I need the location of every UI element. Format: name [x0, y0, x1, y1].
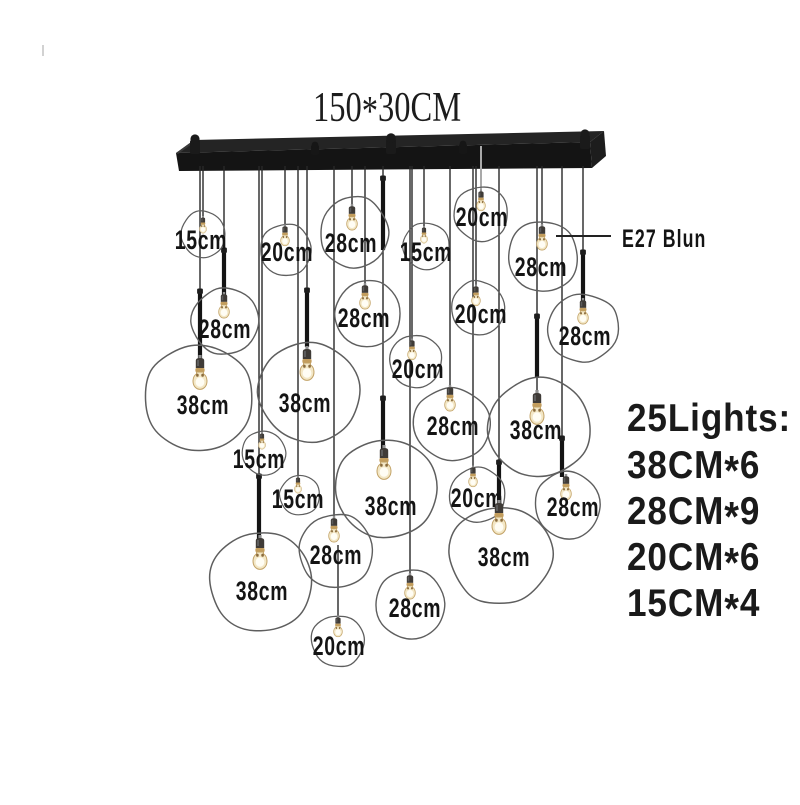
svg-text:28cm: 28cm [199, 314, 252, 344]
svg-text:15cm: 15cm [175, 225, 228, 255]
svg-text:38cm: 38cm [478, 542, 531, 572]
svg-text:28cm: 28cm [310, 540, 363, 570]
svg-text:28cm: 28cm [427, 411, 480, 441]
svg-text:28cm: 28cm [389, 593, 442, 623]
svg-text:20cm: 20cm [392, 354, 445, 384]
svg-text:38cm: 38cm [177, 390, 230, 420]
svg-text:38cm: 38cm [279, 388, 332, 418]
svg-text:25Lights:: 25Lights: [627, 395, 791, 439]
svg-text:15cm: 15cm [272, 484, 325, 514]
svg-text:E27 Blun: E27 Blun [622, 224, 706, 253]
svg-text:20cm: 20cm [456, 202, 509, 232]
svg-text:28cm: 28cm [547, 492, 600, 522]
svg-text:28cm: 28cm [325, 228, 378, 258]
svg-text:38cm: 38cm [236, 576, 289, 606]
svg-text:15cm: 15cm [233, 444, 286, 474]
svg-text:15cm: 15cm [400, 237, 453, 267]
svg-text:28cm: 28cm [559, 321, 612, 351]
svg-text:20cm: 20cm [455, 299, 508, 329]
svg-text:20cm: 20cm [313, 631, 366, 661]
svg-text:20cm: 20cm [261, 237, 314, 267]
svg-text:38cm: 38cm [365, 491, 418, 521]
svg-text:38cm: 38cm [510, 415, 563, 445]
svg-text:28cm: 28cm [338, 303, 391, 333]
svg-text:150*30CM: 150*30CM [313, 84, 461, 135]
svg-text:28cm: 28cm [515, 252, 568, 282]
